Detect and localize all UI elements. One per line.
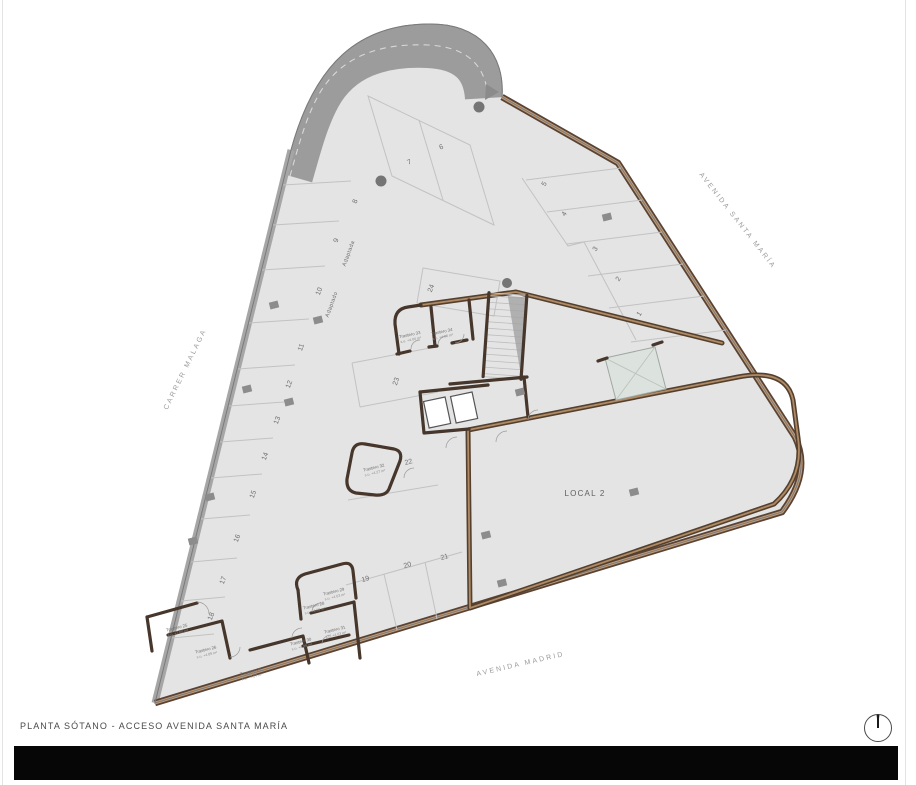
plan-title: PLANTA SÓTANO - ACCESO AVENIDA SANTA MAR…	[20, 721, 288, 731]
footer-bar	[14, 746, 898, 780]
floorplan-page: 1 2 3 4 5 6 7 8 9 Adaptada 10 Adaptado 1…	[0, 0, 916, 785]
street-label-bottom: AVENIDA MADRID	[476, 651, 565, 678]
street-label-right: AVENIDA SANTA MARÍA	[697, 170, 778, 270]
street-label-left: CARRER MALAGA	[163, 328, 208, 411]
page-edge-right	[905, 0, 906, 785]
floorplan-canvas: 1 2 3 4 5 6 7 8 9 Adaptada 10 Adaptado 1…	[0, 0, 916, 785]
site-floor	[155, 24, 801, 703]
compass-icon	[861, 711, 895, 745]
page-edge-left	[2, 0, 3, 785]
local2-label: LOCAL 2	[564, 489, 605, 498]
